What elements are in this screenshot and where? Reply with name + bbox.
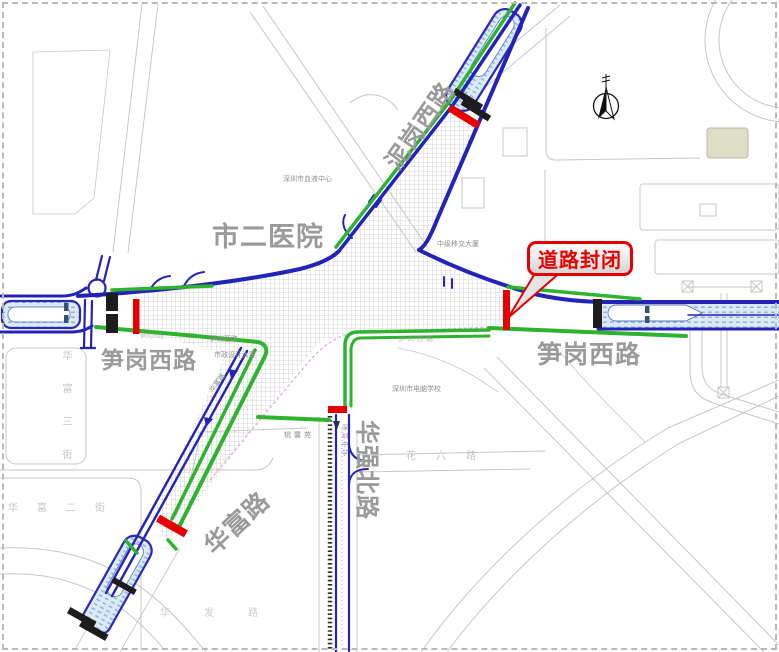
label-hua-fa-road: 华发路	[160, 604, 292, 619]
footbridge	[682, 281, 762, 398]
label-huafu-2nd-street: 华富二街	[8, 499, 124, 514]
road-closure-map: 市二医院 泥岗西路 笋岗西路 笋岗西路 华富路 华强北路 道路封闭 深圳市血液中…	[0, 0, 779, 652]
label-blood-center: 深圳市血液中心	[283, 174, 332, 184]
callout-pointer	[508, 270, 563, 318]
north-arrow	[594, 74, 619, 119]
label-sungang-small-faint2: 笋岗西路	[140, 331, 164, 340]
closure-bar-east	[503, 290, 510, 330]
closure-bar-huaqiang	[328, 406, 347, 413]
beige-building	[707, 128, 748, 158]
bus-corridor-west	[2, 301, 80, 328]
label-hospital: 市二医院	[212, 215, 324, 254]
road-closed-callout: 道路封闭	[527, 241, 633, 276]
closure-bar-west	[133, 299, 140, 334]
label-building-ne: 中级移交大厦	[437, 239, 479, 249]
label-huafu-3rd-street: 华富三街	[58, 350, 73, 482]
label-sungang-small-faint: 笋岗西路	[398, 333, 436, 343]
label-design-building: 市政设计大厦	[214, 350, 256, 360]
label-residence: 桃馨苑	[284, 430, 314, 440]
label-sungang-small: 笋岗西路	[210, 334, 238, 344]
map-canvas	[0, 0, 779, 652]
label-computer-school: 深圳市电脑学校	[392, 384, 441, 394]
label-huaqiang-north-road: 华强北路	[352, 420, 387, 530]
label-middle-school: 深圳中学	[338, 424, 348, 458]
label-hua-liu-road: 花六路	[406, 447, 496, 462]
label-sungang-west-left: 笋岗西路	[101, 341, 197, 375]
label-sungang-west-right: 笋岗西路	[537, 335, 641, 371]
